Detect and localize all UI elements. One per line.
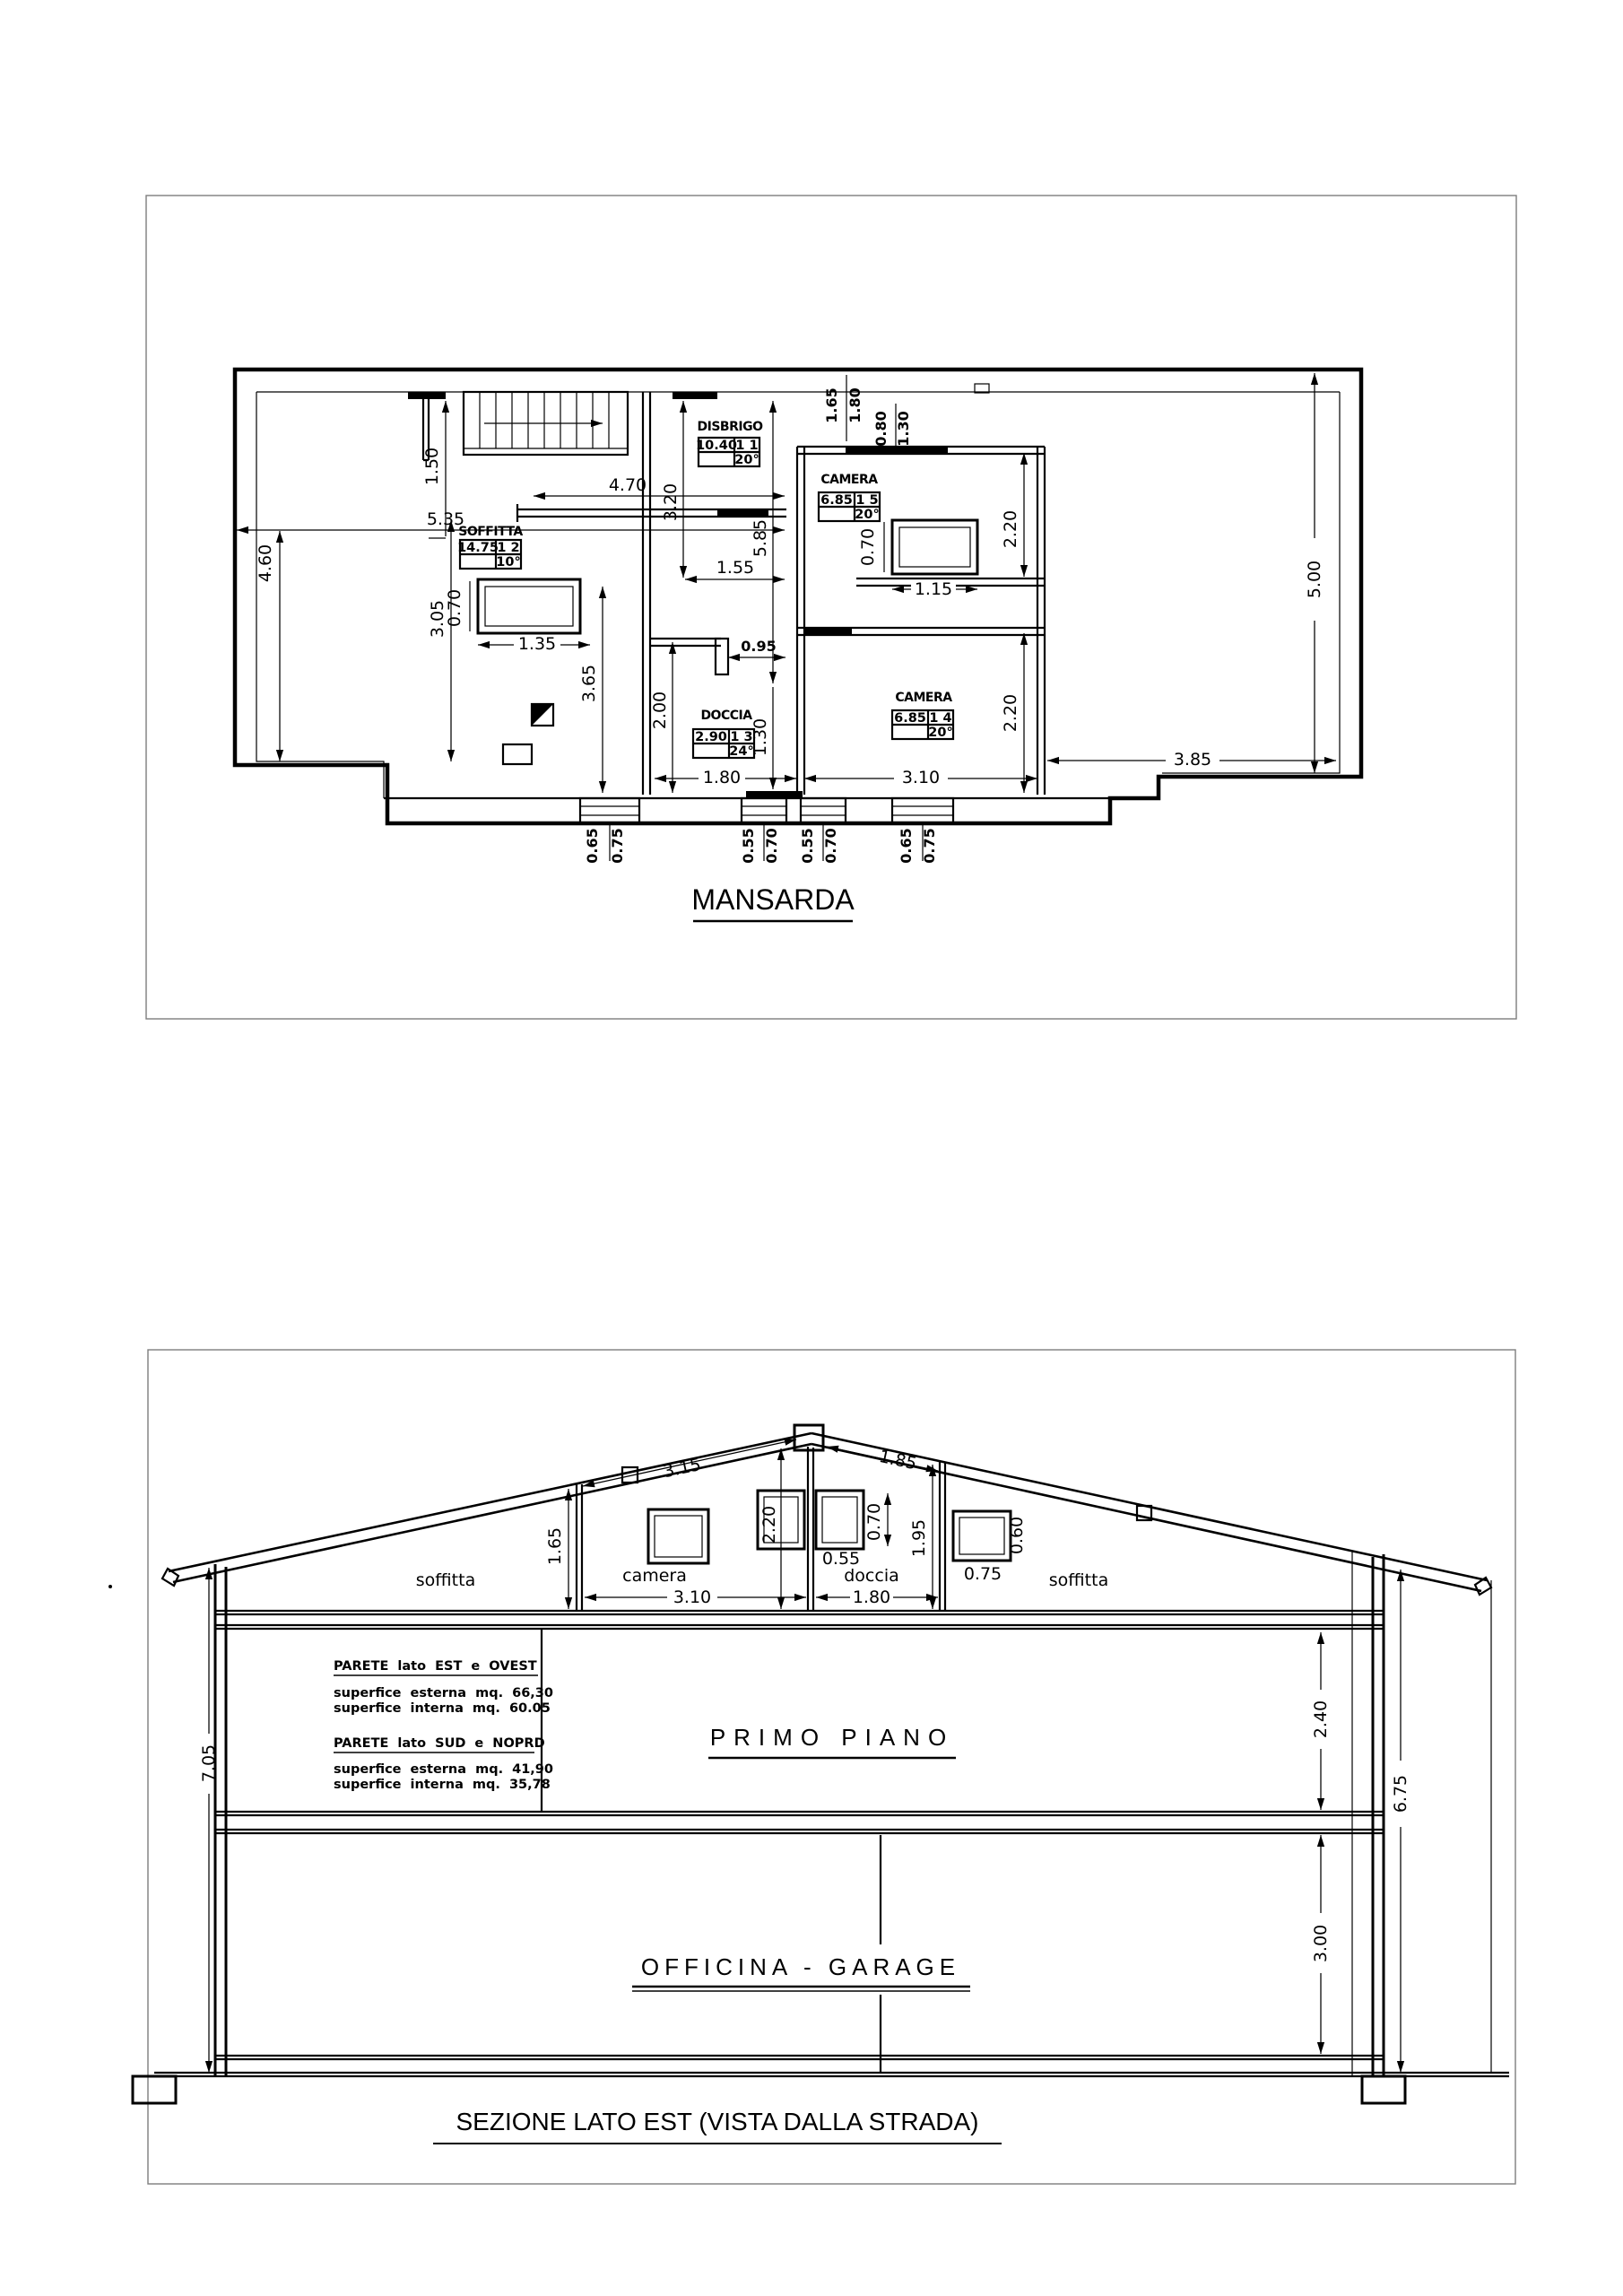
plan-dim-220-camera4: 2.20 xyxy=(1001,694,1020,732)
plan-room-disbrigo: DISBRIGO 10.40 1 1 20° xyxy=(696,420,763,467)
sec-dim-195: 1.95 xyxy=(909,1519,929,1557)
sec-dim-165: 1.65 xyxy=(545,1527,565,1565)
plan-dim-win1-b: 0.75 xyxy=(609,828,626,863)
plan-bottom-windows: 0.65 0.75 0.55 0.70 0.55 0.70 0.65 0.75 xyxy=(580,798,953,864)
sec-dim-070: 0.70 xyxy=(864,1503,884,1541)
section-wall-notes: PARETE lato EST e OVEST superfice estern… xyxy=(334,1659,553,1792)
plan-room-soffitta: SOFFITTA 14.75 1 2 10° xyxy=(457,525,523,570)
plan-dim-win4-a: 0.65 xyxy=(898,828,915,863)
plan-dim-310: 3.10 xyxy=(902,768,940,787)
room-deg: 20° xyxy=(855,508,879,522)
plan-dim-win2-b: 0.70 xyxy=(763,828,780,863)
drawing-sheet: 0.65 0.75 0.55 0.70 0.55 0.70 0.65 0.75 … xyxy=(0,0,1623,2296)
plan-hatch-symbol xyxy=(532,704,553,726)
plan-dim-165: 1.65 xyxy=(823,387,840,422)
sec-dim-310: 3.10 xyxy=(673,1587,711,1607)
plan-dim-180-doccia: 1.80 xyxy=(703,768,741,787)
plan-room-camera5: CAMERA 6.85 1 5 20° xyxy=(819,473,880,522)
plan-dim-385: 3.85 xyxy=(1174,750,1211,770)
label-doccia: doccia xyxy=(844,1566,899,1586)
label-primo-piano: PRIMO PIANO xyxy=(710,1724,954,1751)
note-p1-line2: superfice interna mq. 60.05 xyxy=(334,1701,551,1716)
room-number: 1 1 xyxy=(735,439,758,453)
plan-dim-470: 4.70 xyxy=(609,475,647,495)
room-deg: 20° xyxy=(734,453,759,467)
plan-dim-115: 1.15 xyxy=(915,579,952,599)
section-roof xyxy=(108,1425,1491,1595)
plan-dim-070-soffitta: 0.70 xyxy=(445,589,464,627)
label-soffitta-right: soffitta xyxy=(1049,1570,1108,1590)
room-number: 1 4 xyxy=(929,711,951,726)
plan-dim-365: 3.65 xyxy=(579,665,599,702)
plan-dim-320: 3.20 xyxy=(661,483,681,521)
room-mq: 10.40 xyxy=(696,439,737,453)
plan-dim-460: 4.60 xyxy=(256,544,275,582)
label-officina-garage: OFFICINA - GARAGE xyxy=(641,1953,960,1980)
sec-dim-075: 0.75 xyxy=(964,1564,1002,1584)
note-p2-line1: superfice esterna mq. 41,90 xyxy=(334,1762,553,1777)
plan-dim-095: 0.95 xyxy=(741,638,776,655)
plan-dimensions: 1.50 4.70 5.35 3.20 1.55 5.85 1.30 1.65 … xyxy=(237,373,1336,793)
plan-room-camera4: CAMERA 6.85 1 4 20° xyxy=(892,691,953,740)
plan-dim-win3-a: 0.55 xyxy=(799,828,816,863)
plan-dim-150: 1.50 xyxy=(422,448,442,485)
room-mq: 2.90 xyxy=(695,730,727,744)
plan-dim-200: 2.00 xyxy=(650,691,670,729)
section-title: SEZIONE LATO EST (VISTA DALLA STRADA) xyxy=(433,2108,1002,2144)
plan-dim-win1-a: 0.65 xyxy=(584,828,601,863)
sec-dim-300: 3.00 xyxy=(1311,1925,1331,1962)
room-number: 1 3 xyxy=(730,730,752,744)
plan-dim-220-camera5: 2.20 xyxy=(1001,510,1020,548)
note-p1-title: PARETE lato EST e OVEST xyxy=(334,1659,537,1674)
label-camera: camera xyxy=(622,1566,687,1586)
sec-dim-185: 1.85 xyxy=(877,1447,918,1474)
room-number: 1 5 xyxy=(855,493,878,508)
note-p2-title: PARETE lato SUD e NOPRD xyxy=(334,1736,545,1751)
sec-dim-315: 3.15 xyxy=(662,1455,703,1482)
plan-dim-500: 5.00 xyxy=(1305,561,1324,598)
plan-dim-win3-b: 0.70 xyxy=(822,828,839,863)
plan-title: MANSARDA xyxy=(691,883,855,921)
sec-dim-675: 6.75 xyxy=(1391,1775,1410,1813)
sec-dim-180: 1.80 xyxy=(853,1587,890,1607)
plan-dim-win4-b: 0.75 xyxy=(921,828,938,863)
room-mq: 14.75 xyxy=(457,541,499,555)
room-label: CAMERA xyxy=(895,691,952,705)
label-soffitta-left: soffitta xyxy=(416,1570,475,1590)
plan-dim-win2-a: 0.55 xyxy=(740,828,757,863)
plan-dim-180-top: 1.80 xyxy=(846,387,864,422)
plan-dim-155: 1.55 xyxy=(716,558,754,578)
section-title-text: SEZIONE LATO EST (VISTA DALLA STRADA) xyxy=(456,2108,979,2135)
plan-dim-130-top: 1.30 xyxy=(895,411,912,446)
room-number: 1 2 xyxy=(497,541,519,555)
room-mq: 6.85 xyxy=(820,493,853,508)
sec-dim-060: 0.60 xyxy=(1007,1517,1027,1554)
room-deg: 24° xyxy=(729,744,753,759)
sec-dim-220: 2.20 xyxy=(759,1506,779,1544)
plan-dim-585: 5.85 xyxy=(751,519,770,557)
note-p1-line1: superfice esterna mq. 66,30 xyxy=(334,1686,553,1700)
room-mq: 6.85 xyxy=(894,711,926,726)
room-label: SOFFITTA xyxy=(458,525,523,539)
room-deg: 20° xyxy=(928,726,952,740)
plan-dim-070-camera5: 0.70 xyxy=(858,528,878,566)
room-deg: 10° xyxy=(496,555,520,570)
room-label: CAMERA xyxy=(820,473,878,487)
plan-title-text: MANSARDA xyxy=(691,883,855,916)
room-label: DOCCIA xyxy=(700,709,752,723)
room-label: DISBRIGO xyxy=(698,420,764,434)
note-p2-line2: superfice interna mq. 35,78 xyxy=(334,1778,551,1792)
cad-drawing: 0.65 0.75 0.55 0.70 0.55 0.70 0.65 0.75 … xyxy=(0,0,1623,2296)
plan-dim-135: 1.35 xyxy=(518,634,556,654)
sec-dim-705: 7.05 xyxy=(199,1744,219,1782)
plan-dim-080: 0.80 xyxy=(872,411,890,446)
plan-room-doccia: DOCCIA 2.90 1 3 24° xyxy=(693,709,754,759)
sec-dim-240: 2.40 xyxy=(1311,1700,1331,1738)
